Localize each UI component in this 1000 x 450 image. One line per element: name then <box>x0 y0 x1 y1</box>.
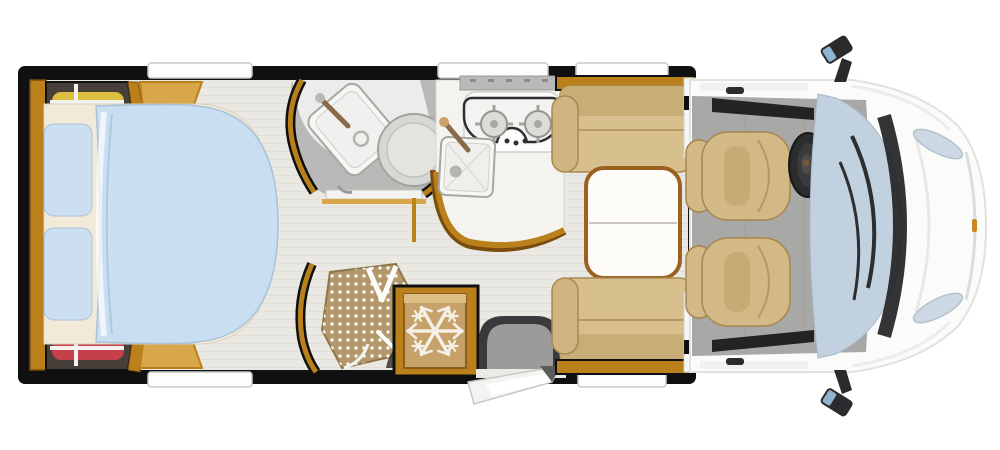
cab-roof-strip-top <box>700 83 808 91</box>
bedroom <box>30 80 278 372</box>
hallway-partition <box>412 198 416 242</box>
door-handle-bottom <box>726 358 744 365</box>
window-strip <box>148 63 252 78</box>
side-marker-light <box>972 219 977 232</box>
dinette-bench-rear <box>552 86 690 172</box>
backsplash <box>460 76 562 90</box>
driver-seat <box>686 132 790 220</box>
refrigerator <box>394 286 478 376</box>
motorhome-floorplan <box>0 0 1000 450</box>
floorplan-stage <box>0 0 1000 450</box>
bench-frame-front <box>556 360 694 374</box>
duvet <box>96 105 278 344</box>
dinette-table <box>586 168 680 278</box>
bathroom-threshold <box>322 199 426 204</box>
pillow <box>44 124 92 216</box>
bathroom-door <box>326 190 422 199</box>
armrest <box>552 278 578 354</box>
sink-faucet-knob <box>439 117 449 127</box>
pillow <box>44 228 92 320</box>
cab-roof-strip-bottom <box>700 361 808 369</box>
dinette-bench-front <box>552 278 690 364</box>
island-bed <box>44 104 278 344</box>
window-strip <box>148 372 252 387</box>
door-handle-top <box>726 87 744 94</box>
side-mirror-top <box>819 34 854 82</box>
armrest <box>552 96 578 172</box>
basin-faucet-knob <box>315 93 325 103</box>
side-mirror-bottom <box>819 370 854 418</box>
passenger-seat <box>686 238 790 326</box>
kitchen <box>435 76 564 247</box>
cab <box>686 34 986 418</box>
